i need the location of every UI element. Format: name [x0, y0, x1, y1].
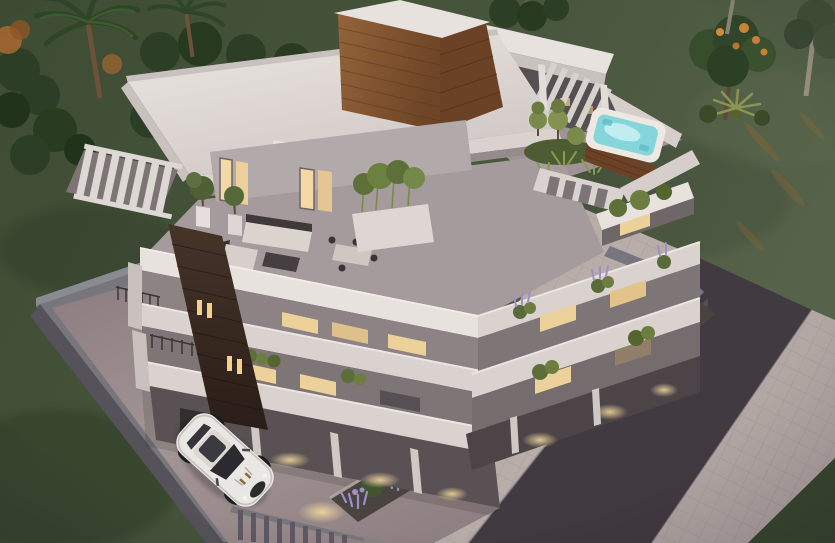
architectural-render — [0, 0, 835, 543]
render-viewport — [0, 0, 835, 543]
dusk-vignette — [0, 0, 835, 543]
